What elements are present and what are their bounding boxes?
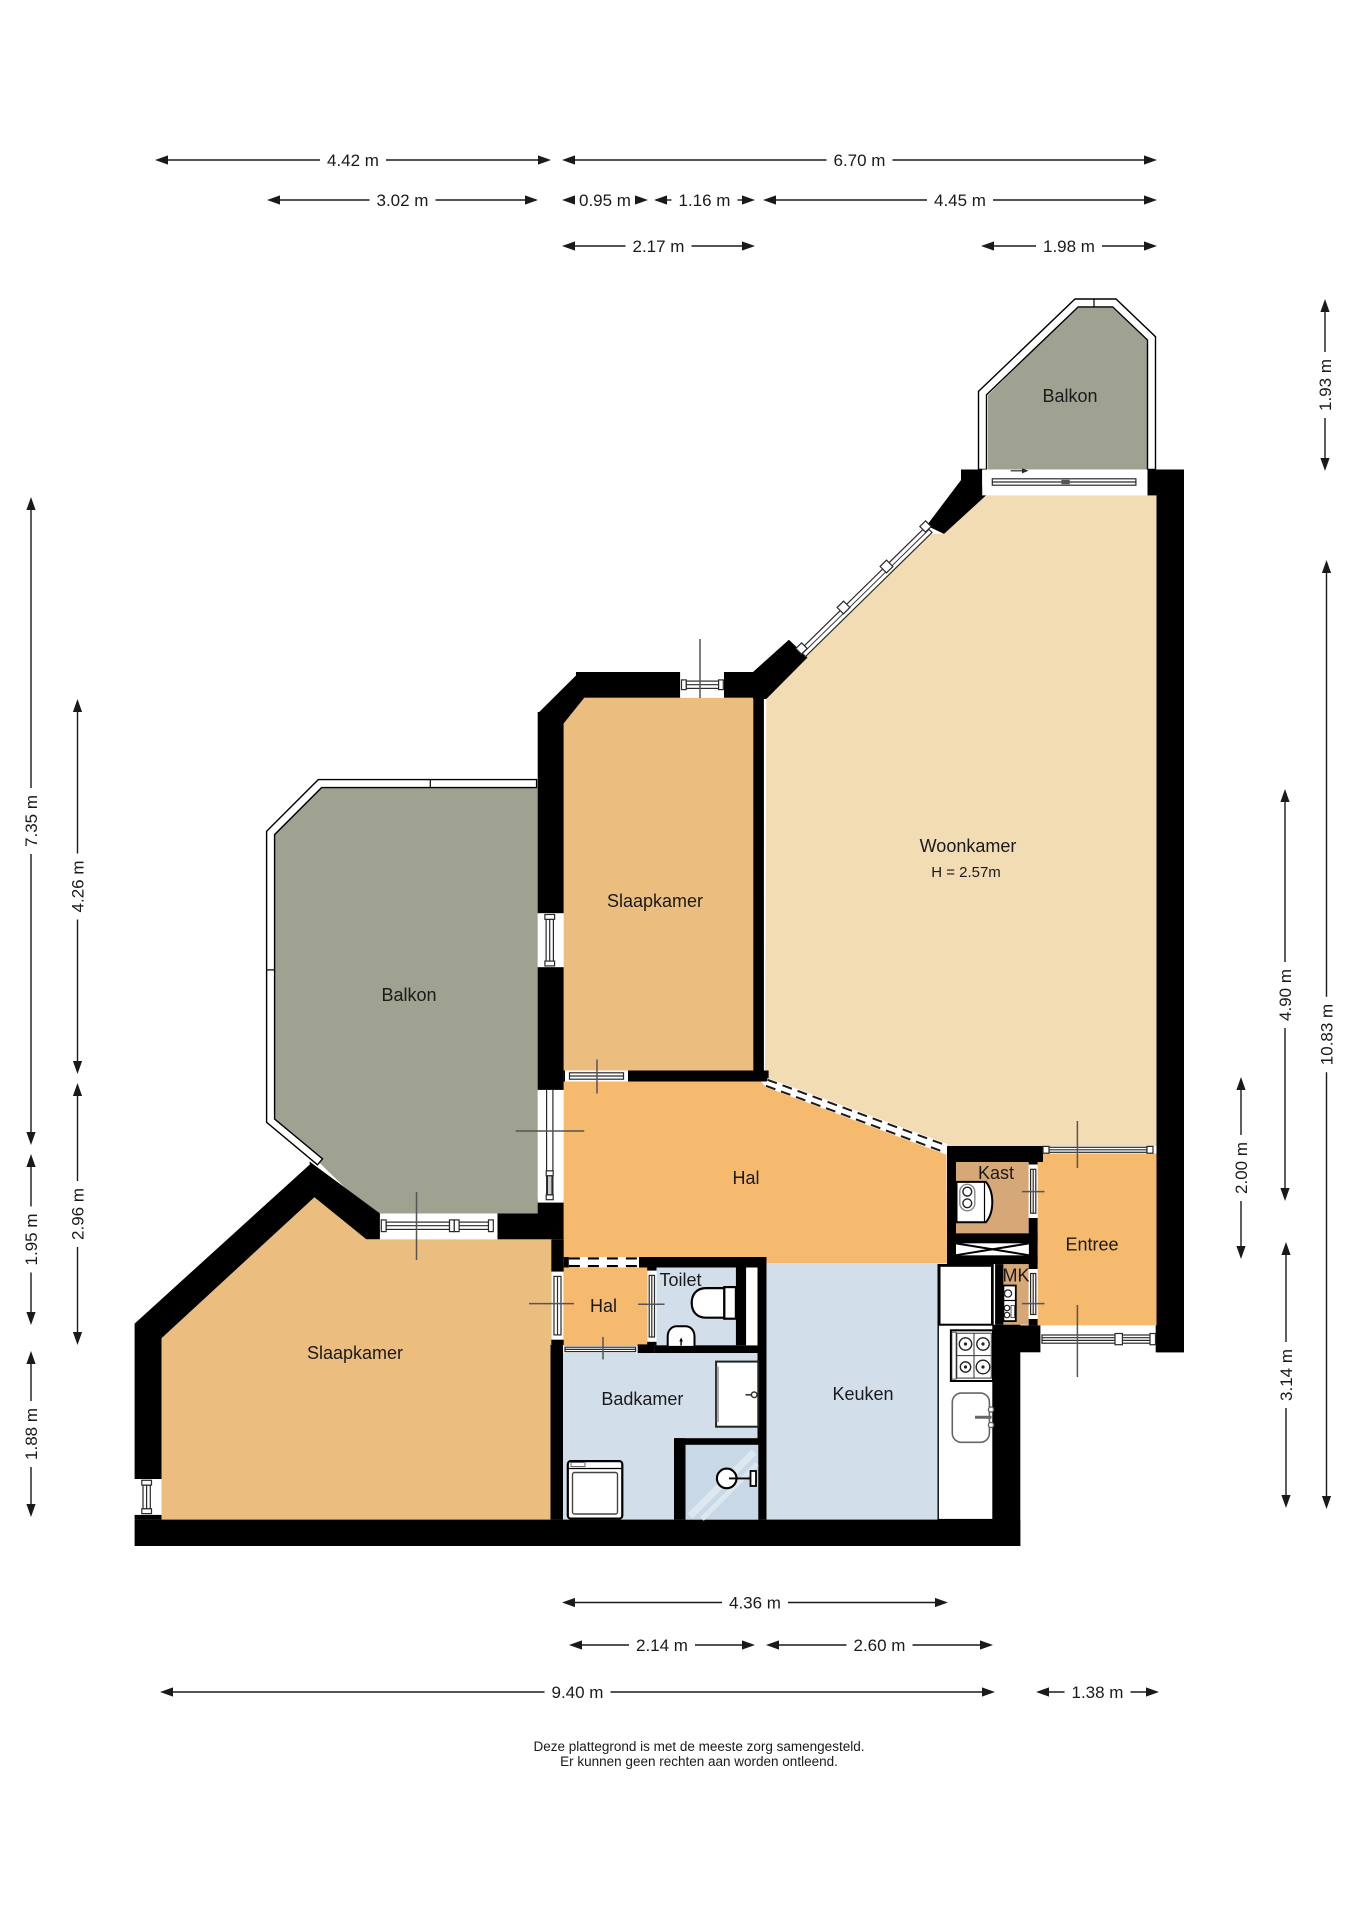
- svg-text:Badkamer: Badkamer: [601, 1389, 683, 1409]
- svg-text:Kast: Kast: [978, 1163, 1014, 1183]
- svg-text:2.17 m: 2.17 m: [633, 237, 685, 256]
- svg-text:6.70 m: 6.70 m: [834, 151, 886, 170]
- svg-text:Deze plattegrond is met de mee: Deze plattegrond is met de meeste zorg s…: [534, 1739, 865, 1754]
- svg-text:1.88 m: 1.88 m: [22, 1408, 41, 1460]
- svg-text:1.98 m: 1.98 m: [1043, 237, 1095, 256]
- svg-text:4.45 m: 4.45 m: [934, 191, 986, 210]
- svg-text:7.35 m: 7.35 m: [22, 795, 41, 847]
- svg-text:Balkon: Balkon: [381, 985, 436, 1005]
- svg-text:10.83 m: 10.83 m: [1318, 1004, 1337, 1065]
- svg-text:1.93 m: 1.93 m: [1316, 359, 1335, 411]
- svg-text:Slaapkamer: Slaapkamer: [607, 891, 703, 911]
- svg-text:1.38 m: 1.38 m: [1072, 1683, 1124, 1702]
- svg-text:2.00 m: 2.00 m: [1232, 1142, 1251, 1194]
- svg-text:4.42 m: 4.42 m: [327, 151, 379, 170]
- svg-text:2.60 m: 2.60 m: [854, 1636, 906, 1655]
- svg-text:Slaapkamer: Slaapkamer: [307, 1343, 403, 1363]
- svg-text:1.16 m: 1.16 m: [679, 191, 731, 210]
- svg-text:Hal: Hal: [590, 1296, 617, 1316]
- svg-text:Balkon: Balkon: [1042, 386, 1097, 406]
- svg-text:2.96 m: 2.96 m: [69, 1188, 88, 1240]
- svg-text:3.02 m: 3.02 m: [377, 191, 429, 210]
- svg-text:Woonkamer: Woonkamer: [920, 836, 1017, 856]
- svg-text:Keuken: Keuken: [832, 1384, 893, 1404]
- svg-text:0.95 m: 0.95 m: [579, 191, 631, 210]
- svg-text:2.14 m: 2.14 m: [636, 1636, 688, 1655]
- svg-text:1.95 m: 1.95 m: [22, 1214, 41, 1266]
- svg-text:Entree: Entree: [1065, 1235, 1118, 1255]
- svg-text:Hal: Hal: [732, 1168, 759, 1188]
- svg-text:3.14 m: 3.14 m: [1277, 1349, 1296, 1401]
- svg-text:9.40 m: 9.40 m: [552, 1683, 604, 1702]
- svg-text:4.36 m: 4.36 m: [729, 1594, 781, 1613]
- svg-text:H = 2.57m: H = 2.57m: [931, 864, 1001, 881]
- svg-text:4.26 m: 4.26 m: [69, 861, 88, 913]
- svg-text:4.90 m: 4.90 m: [1276, 969, 1295, 1021]
- svg-text:Er kunnen geen rechten aan wor: Er kunnen geen rechten aan worden ontlee…: [560, 1754, 838, 1769]
- svg-text:MK: MK: [1003, 1266, 1030, 1286]
- svg-text:Toilet: Toilet: [659, 1270, 701, 1290]
